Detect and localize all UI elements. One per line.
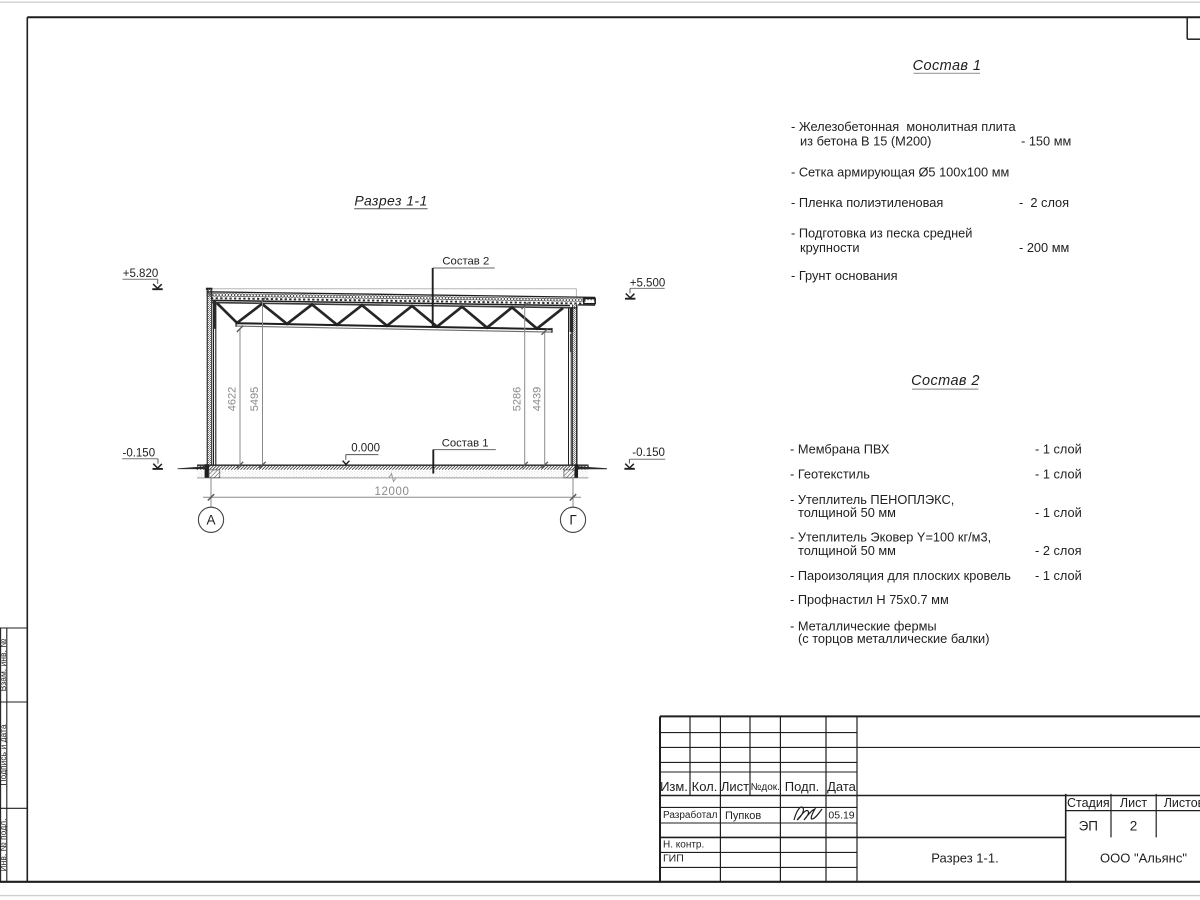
svg-text:4439: 4439 (532, 387, 544, 411)
svg-text:Стадия: Стадия (1067, 796, 1110, 810)
svg-text:Разрез 1-1: Разрез 1-1 (354, 192, 427, 208)
svg-text:+5.820: +5.820 (123, 268, 159, 280)
svg-text:Инв. № подл.: Инв. № подл. (0, 819, 8, 872)
svg-text:- 150 мм: - 150 мм (1021, 134, 1071, 149)
svg-text:0.000: 0.000 (351, 443, 380, 455)
svg-text:- Железобетонная монолитная п: - Железобетонная монолитная плита (791, 119, 1017, 134)
svg-text:ГИП: ГИП (663, 853, 684, 865)
svg-text:- 1 слой: - 1 слой (1035, 467, 1082, 482)
svg-text:Состав 1: Состав 1 (442, 438, 489, 450)
svg-text:Разработал: Разработал (663, 809, 718, 821)
svg-text:Лист: Лист (1120, 796, 1147, 810)
svg-text:2: 2 (1130, 819, 1138, 834)
svg-text:- 200 мм: - 200 мм (1019, 240, 1069, 255)
svg-text:- Мембрана ПВХ: - Мембрана ПВХ (790, 441, 890, 456)
svg-text:- Сетка армирующая Ø5 100х100: - Сетка армирующая Ø5 100х100 мм (791, 164, 1009, 179)
svg-text:Изм.: Изм. (660, 779, 688, 794)
svg-text:Взам. инв. №: Взам. инв. № (0, 639, 8, 692)
svg-text:Листов: Листов (1164, 796, 1200, 810)
svg-text:Н. контр.: Н. контр. (663, 840, 704, 851)
svg-text:- 2 слоя: - 2 слоя (1019, 195, 1069, 210)
svg-text:- Грунт основания: - Грунт основания (791, 268, 898, 283)
svg-text:Состав 2: Состав 2 (911, 373, 980, 389)
svg-text:- 2 слоя: - 2 слоя (1035, 543, 1082, 558)
svg-text:Состав 1: Состав 1 (913, 58, 982, 74)
svg-text:-0.150: -0.150 (632, 447, 665, 459)
svg-text:12000: 12000 (375, 486, 410, 498)
svg-text:+5.500: +5.500 (630, 277, 666, 289)
svg-text:5495: 5495 (249, 387, 261, 411)
svg-text:Г: Г (569, 513, 577, 528)
svg-text:толщиной 50 мм: толщиной 50 мм (798, 543, 896, 558)
svg-text:5286: 5286 (512, 387, 524, 411)
svg-text:толщиной 50 мм: толщиной 50 мм (798, 505, 896, 520)
svg-text:Дата: Дата (827, 779, 857, 794)
svg-text:Кол.: Кол. (692, 779, 718, 794)
svg-text:- 1 слой: - 1 слой (1035, 505, 1082, 520)
svg-text:Подп.: Подп. (785, 779, 820, 794)
svg-text:- Пленка полиэтиленовая: - Пленка полиэтиленовая (791, 195, 943, 210)
svg-text:Состав 2: Состав 2 (442, 255, 489, 267)
svg-text:Разрез 1-1.: Разрез 1-1. (931, 851, 998, 866)
svg-text:05.19: 05.19 (828, 810, 854, 822)
svg-text:- Подготовка из песка средней: - Подготовка из песка средней (791, 226, 972, 241)
svg-text:- Пароизоляция для плоских кро: - Пароизоляция для плоских кровель (790, 568, 1011, 583)
svg-text:Пупков: Пупков (725, 810, 761, 822)
svg-text:Лист: Лист (721, 779, 749, 794)
svg-text:Подпись и дата: Подпись и дата (0, 724, 8, 785)
svg-text:- Геотекстиль: - Геотекстиль (790, 467, 870, 482)
svg-text:ООО "Альянс": ООО "Альянс" (1100, 851, 1187, 866)
svg-text:№док.: №док. (751, 782, 780, 793)
svg-text:А: А (206, 513, 215, 528)
svg-text:ЭП: ЭП (1079, 819, 1098, 834)
svg-text:-0.150: -0.150 (122, 448, 155, 460)
svg-text:- 1 слой: - 1 слой (1035, 441, 1082, 456)
svg-text:(с торцов металлические балки): (с торцов металлические балки) (798, 631, 989, 646)
svg-text:- Профнастил Н 75х0.7 мм: - Профнастил Н 75х0.7 мм (790, 592, 949, 607)
svg-text:4622: 4622 (227, 387, 239, 411)
svg-text:крупности: крупности (800, 240, 860, 255)
svg-text:- 1 слой: - 1 слой (1035, 568, 1082, 583)
svg-text:из бетона В 15 (М200): из бетона В 15 (М200) (800, 134, 931, 149)
